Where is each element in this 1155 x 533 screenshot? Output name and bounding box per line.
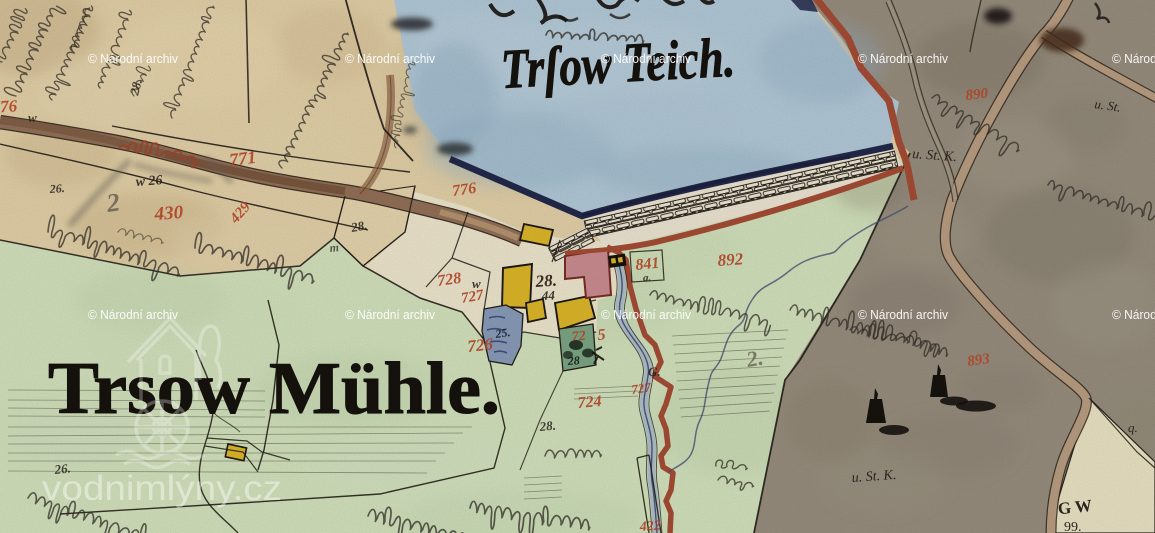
svg-text:© Národní archiv: © Národní archiv: [345, 51, 435, 66]
svg-text:© Národní archiv: © Národní archiv: [1112, 51, 1155, 66]
svg-text:© Národní archiv: © Národní archiv: [345, 307, 435, 322]
svg-text:© Národní archiv: © Národní archiv: [88, 307, 178, 322]
svg-text:© Národní archiv: © Národní archiv: [858, 307, 948, 322]
svg-text:© Národní archiv: © Národní archiv: [601, 51, 691, 66]
svg-text:© Národní archiv: © Národní archiv: [601, 307, 691, 322]
svg-text:© Národní archiv: © Národní archiv: [858, 51, 948, 66]
svg-text:© Národní archiv: © Národní archiv: [1112, 307, 1155, 322]
svg-text:vodnimlýny.cz: vodnimlýny.cz: [42, 469, 282, 508]
svg-text:© Národní archiv: © Národní archiv: [88, 51, 178, 66]
